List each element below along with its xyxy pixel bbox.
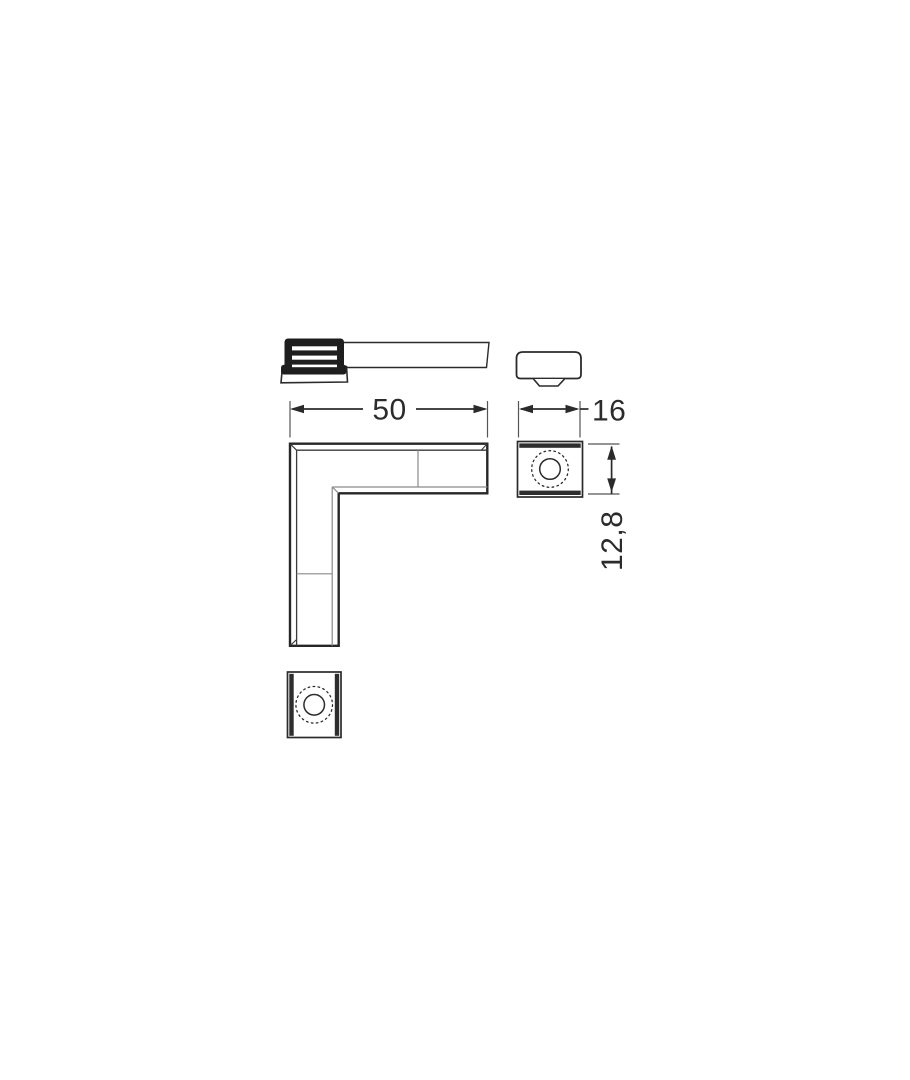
flange-band-bottom bbox=[519, 491, 580, 495]
dimension-width: 50 bbox=[290, 394, 488, 438]
end-view-right bbox=[518, 442, 583, 498]
drawing-svg: 50 16 bbox=[0, 0, 910, 1080]
dimension-depth: 16 bbox=[519, 395, 627, 438]
dim-height-label: 12,8 bbox=[596, 511, 629, 571]
flange-band-left bbox=[289, 674, 293, 736]
end-view-bottom bbox=[288, 672, 342, 738]
arrow-up-icon bbox=[607, 446, 616, 460]
dimension-height: 12,8 bbox=[588, 444, 629, 571]
technical-drawing-page: 50 16 bbox=[0, 0, 910, 1080]
corner-profile-front-view bbox=[290, 444, 487, 646]
arrow-down-icon bbox=[607, 478, 616, 492]
dim-depth-label: 16 bbox=[592, 395, 626, 428]
arrow-left-icon bbox=[290, 405, 304, 414]
dim-width-label: 50 bbox=[372, 394, 406, 427]
flange-band-top bbox=[519, 443, 580, 447]
arrow-right-icon bbox=[474, 405, 488, 414]
cap-slot bbox=[292, 356, 337, 360]
arrow-left-icon bbox=[519, 405, 533, 414]
screw-hole-circle bbox=[304, 695, 325, 716]
corner-profile-outline bbox=[290, 444, 487, 646]
cap-bottom-tab bbox=[534, 379, 565, 386]
profile-side-view bbox=[281, 339, 489, 383]
screw-hole-circle bbox=[540, 459, 561, 480]
cap-outline bbox=[517, 352, 582, 379]
cap-slot bbox=[292, 365, 337, 368]
end-cap-body bbox=[285, 339, 345, 369]
cap-top-view bbox=[517, 352, 582, 386]
flange-band-right bbox=[335, 674, 339, 736]
arrow-right-icon bbox=[566, 405, 580, 414]
cap-slot bbox=[292, 346, 337, 350]
profile-body bbox=[341, 343, 489, 368]
